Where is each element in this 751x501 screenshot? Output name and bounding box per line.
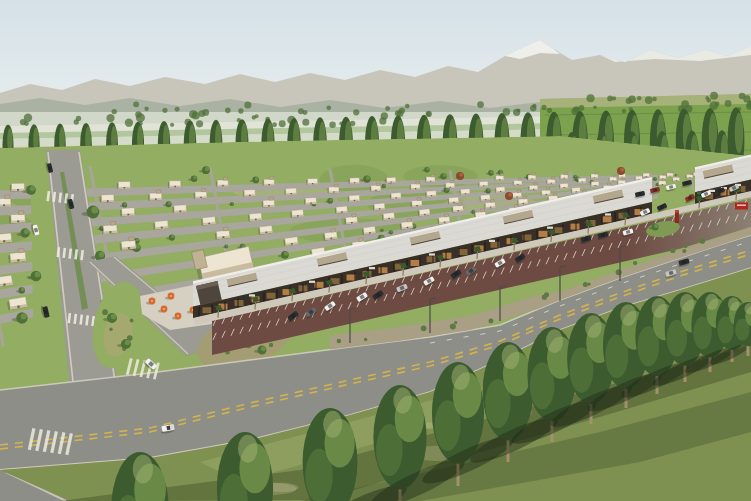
- house-accent-volume: [352, 214, 357, 217]
- distant-tree: [710, 92, 718, 100]
- house-accent-volume: [451, 180, 454, 182]
- house-accent-volume: [334, 184, 338, 187]
- distant-tree: [24, 114, 32, 122]
- distant-tree: [706, 98, 711, 103]
- house-accent-volume: [18, 211, 24, 215]
- house-accent-volume: [376, 183, 380, 186]
- umbrella-top: [151, 300, 153, 302]
- median-shrub: [700, 238, 706, 244]
- distant-tree: [112, 109, 117, 114]
- storefront-window: [555, 227, 564, 233]
- house-door: [297, 215, 299, 217]
- house: [385, 177, 395, 183]
- palm-crown: [253, 297, 258, 302]
- distant-tree: [715, 101, 720, 106]
- house-accent-volume: [500, 174, 503, 176]
- median-shrub: [337, 339, 341, 343]
- house-accent-volume: [663, 174, 666, 176]
- house-door: [670, 176, 671, 177]
- house-accent-volume: [269, 197, 273, 200]
- distant-tree: [513, 109, 520, 116]
- monument-top: [675, 210, 679, 213]
- house-accent-volume: [490, 200, 494, 203]
- tree-highlight: [171, 235, 174, 238]
- house-door: [576, 191, 577, 192]
- canopy-sunlit-top: [652, 298, 667, 318]
- red-tree-highlight: [459, 173, 463, 177]
- median-shrub: [583, 282, 588, 287]
- house-door: [109, 231, 111, 233]
- palm-crown: [364, 272, 369, 277]
- canopy-sunlit-top: [705, 294, 718, 310]
- tree-highlight: [99, 252, 105, 258]
- tree-highlight: [443, 174, 447, 178]
- distant-tree: [541, 105, 546, 110]
- distant-tree: [135, 111, 142, 118]
- tree-highlight: [654, 224, 658, 228]
- house-accent-volume: [416, 182, 420, 185]
- house-door: [444, 222, 446, 224]
- house-door: [516, 196, 517, 197]
- house-door: [128, 247, 130, 249]
- house-door: [391, 181, 392, 182]
- distant-tree: [133, 101, 139, 107]
- house: [495, 187, 505, 193]
- tree-highlight: [242, 244, 245, 247]
- tree-highlight: [500, 170, 503, 173]
- house-door: [17, 259, 19, 261]
- distant-tree: [628, 95, 636, 103]
- house: [571, 187, 581, 193]
- house-door: [107, 200, 109, 202]
- canopy-sunlit-top: [502, 344, 520, 369]
- house: [0, 233, 12, 244]
- tree-highlight: [473, 210, 475, 212]
- house-door: [424, 214, 426, 215]
- house-door: [388, 218, 390, 220]
- tree-highlight: [255, 177, 259, 181]
- tree-highlight: [261, 346, 266, 351]
- storefront-window: [427, 256, 436, 262]
- house-door: [551, 183, 552, 184]
- distant-tree: [547, 108, 552, 113]
- canopy-sunlit-top: [238, 435, 258, 463]
- house-accent-volume: [431, 175, 434, 177]
- house-accent-volume: [676, 175, 679, 177]
- house-accent-volume: [670, 171, 672, 173]
- median-shrub: [684, 245, 688, 249]
- distant-tree: [530, 105, 536, 111]
- house-accent-volume: [480, 209, 484, 212]
- house: [418, 209, 431, 217]
- tree-highlight: [35, 272, 41, 278]
- tree-highlight: [91, 207, 98, 214]
- tree-highlight: [21, 313, 27, 319]
- palm-crown: [216, 305, 221, 310]
- distant-tree: [645, 96, 653, 104]
- palm-crown: [290, 288, 295, 293]
- house: [100, 194, 114, 202]
- distant-tree: [76, 116, 81, 121]
- store-sign: [489, 240, 495, 242]
- house-door: [431, 195, 432, 196]
- tree-highlight: [124, 203, 127, 206]
- house-accent-volume: [156, 190, 161, 193]
- tree-highlight: [231, 202, 233, 204]
- distant-tree: [385, 106, 390, 111]
- canopy-sunlit-top: [323, 411, 342, 438]
- canopy-sunlit-top: [133, 455, 153, 484]
- palm-crown: [327, 280, 332, 285]
- house-door: [689, 177, 690, 178]
- palm-crown: [549, 229, 554, 234]
- store-sign: [547, 227, 553, 229]
- house-door: [564, 178, 565, 179]
- median-shrub: [450, 323, 456, 329]
- median-shrub: [488, 318, 493, 323]
- canopy-sunlit-top: [546, 329, 563, 353]
- storefront-window: [539, 231, 548, 237]
- house-door: [379, 208, 381, 209]
- house: [243, 190, 256, 197]
- distant-tree: [225, 107, 231, 113]
- storefront-window: [235, 300, 244, 306]
- house-door: [662, 178, 663, 179]
- house-accent-volume: [607, 183, 610, 185]
- distant-tree: [202, 109, 209, 116]
- tree-highlight: [193, 176, 197, 180]
- house-door: [369, 232, 371, 234]
- house: [120, 208, 135, 217]
- distant-tree: [593, 105, 597, 109]
- house-door: [622, 177, 623, 178]
- house-door: [490, 207, 491, 208]
- store-sign: [309, 281, 315, 283]
- tree-highlight: [125, 340, 131, 346]
- house-accent-volume: [331, 229, 336, 233]
- poplar-highlight: [735, 113, 743, 153]
- store-sign: [369, 267, 375, 269]
- house-door: [3, 204, 5, 206]
- house-accent-volume: [129, 237, 135, 241]
- median-shrub: [364, 338, 367, 341]
- palm-crown: [438, 255, 443, 260]
- house-door: [533, 189, 534, 190]
- house-door: [453, 202, 454, 203]
- storefront-window: [411, 260, 420, 266]
- distant-tree: [162, 108, 167, 113]
- house-accent-volume: [622, 178, 625, 180]
- umbrella-top: [177, 315, 179, 317]
- house-door: [179, 211, 181, 213]
- house-door: [265, 232, 267, 234]
- house-door: [613, 180, 614, 181]
- house-door: [333, 191, 334, 192]
- house: [382, 212, 395, 220]
- distant-tree: [272, 122, 277, 127]
- house: [168, 181, 181, 188]
- house-accent-volume: [417, 198, 421, 201]
- house-door: [268, 205, 270, 206]
- tree-highlight: [205, 167, 209, 171]
- house-accent-volume: [552, 177, 555, 179]
- house: [642, 173, 650, 177]
- distant-tree: [238, 108, 243, 113]
- house-door: [676, 180, 677, 181]
- desert-shrub: [269, 343, 273, 347]
- house-door: [595, 185, 596, 186]
- house-door: [395, 197, 396, 198]
- house-door: [3, 283, 6, 285]
- house-door: [17, 305, 20, 307]
- house-accent-volume: [613, 175, 616, 177]
- house-accent-volume: [514, 204, 518, 207]
- distant-tree: [189, 110, 197, 118]
- house-door: [546, 194, 547, 195]
- distant-tree: [244, 101, 251, 108]
- distant-tree: [302, 119, 309, 126]
- palm-crown: [475, 246, 480, 251]
- distant-tree: [170, 123, 174, 127]
- house-door: [222, 236, 224, 238]
- distant-tree: [739, 93, 746, 100]
- distant-tree: [622, 109, 626, 113]
- distant-tree: [586, 94, 594, 102]
- store-sign: [605, 213, 611, 215]
- distant-tree: [298, 108, 304, 114]
- canopy-sunlit-top: [585, 315, 602, 338]
- house: [390, 193, 402, 200]
- tree-highlight: [490, 171, 493, 174]
- distant-tree: [175, 107, 180, 112]
- red-tree-highlight: [620, 168, 624, 172]
- house-door: [312, 183, 313, 184]
- tree-highlight: [24, 229, 29, 234]
- tree-highlight: [136, 238, 139, 241]
- storefront-window: [459, 249, 468, 255]
- storefront-window: [347, 275, 356, 281]
- palm-crown: [586, 221, 591, 226]
- house-door: [499, 179, 500, 180]
- distant-tree: [144, 106, 148, 110]
- house-accent-volume: [546, 188, 549, 191]
- house-door: [430, 181, 431, 182]
- house: [335, 206, 348, 214]
- house: [117, 182, 131, 190]
- red-tree-highlight: [508, 193, 512, 197]
- render-canvas: [0, 0, 751, 501]
- tree-highlight: [383, 184, 385, 186]
- median-shrub: [542, 295, 547, 300]
- house: [306, 178, 317, 184]
- house-door: [407, 227, 409, 229]
- canopy-sunlit-top: [728, 297, 739, 311]
- house-door: [155, 198, 157, 200]
- canopy-sunlit-top: [680, 294, 694, 312]
- storefront-window: [571, 224, 580, 230]
- median-shrub: [682, 249, 686, 253]
- tree-highlight: [366, 176, 370, 180]
- tree-highlight: [413, 224, 416, 227]
- house-door: [375, 190, 376, 191]
- house-door: [457, 210, 459, 211]
- house: [349, 178, 360, 184]
- distant-tree: [405, 104, 410, 109]
- aerial-community-render: [0, 0, 751, 501]
- distant-tree: [326, 106, 331, 111]
- house-door: [582, 181, 583, 182]
- tree-highlight: [21, 288, 25, 292]
- distant-tree: [652, 97, 657, 102]
- house-door: [123, 187, 125, 188]
- house-door: [161, 227, 163, 229]
- tree-highlight: [111, 314, 117, 320]
- house-door: [354, 200, 356, 201]
- distant-tree: [106, 114, 114, 122]
- storefront-window: [379, 267, 388, 273]
- house-accent-volume: [518, 178, 521, 180]
- house: [559, 183, 568, 189]
- distant-tree: [579, 105, 585, 111]
- house-door: [415, 188, 416, 189]
- distant-tree: [612, 96, 616, 100]
- median-shrub: [454, 321, 457, 324]
- house-accent-volume: [18, 248, 24, 253]
- house-door: [208, 223, 210, 225]
- house: [425, 191, 436, 198]
- house: [284, 188, 296, 195]
- house-door: [330, 237, 332, 239]
- house-door: [17, 189, 19, 191]
- entry-monument-sign: [735, 203, 748, 210]
- house-accent-volume: [458, 203, 462, 206]
- store-sign: [429, 253, 435, 255]
- distant-tree: [637, 96, 641, 100]
- house-door: [3, 240, 5, 242]
- palm-crown: [512, 238, 517, 243]
- house-door: [255, 219, 257, 221]
- palm-crown: [623, 213, 628, 218]
- sign-text-band: [737, 205, 746, 206]
- house-accent-volume: [5, 195, 10, 199]
- house-door: [200, 197, 202, 198]
- house-accent-volume: [565, 173, 568, 175]
- house-accent-volume: [532, 173, 535, 175]
- palm-crown: [401, 263, 406, 268]
- house-accent-volume: [595, 172, 598, 174]
- house-door: [341, 211, 343, 212]
- house-door: [485, 199, 486, 200]
- distant-tree: [196, 120, 203, 127]
- distant-tree: [254, 114, 258, 118]
- median-shrub: [587, 283, 590, 286]
- house: [373, 203, 385, 210]
- house-door: [17, 220, 19, 222]
- distant-tree: [381, 112, 388, 119]
- house-door: [310, 203, 312, 204]
- house-door: [222, 185, 224, 186]
- house-accent-volume: [553, 193, 557, 196]
- house: [258, 225, 273, 234]
- house-door: [564, 187, 565, 188]
- distant-tree: [353, 109, 359, 115]
- house: [153, 220, 168, 229]
- tree-highlight: [426, 167, 429, 170]
- house-door: [290, 193, 292, 194]
- green-sign: [697, 192, 701, 195]
- storefront-window: [267, 293, 276, 299]
- tree-highlight: [136, 244, 141, 249]
- house-door: [268, 184, 269, 185]
- house-door: [291, 243, 293, 245]
- house: [201, 217, 216, 226]
- house-door: [662, 184, 663, 185]
- house-accent-volume: [523, 196, 527, 199]
- house-door: [483, 185, 484, 186]
- tree-highlight: [654, 177, 656, 179]
- island-shrub: [102, 309, 108, 315]
- house-door: [517, 184, 518, 185]
- island-shrub: [130, 319, 134, 323]
- house-accent-volume: [407, 219, 412, 222]
- house: [348, 195, 360, 202]
- house: [304, 197, 317, 204]
- house-door: [174, 186, 176, 187]
- house-accent-volume: [270, 177, 274, 180]
- house: [172, 205, 186, 213]
- house: [10, 183, 25, 191]
- store-sign: [249, 294, 255, 296]
- tree-highlight: [284, 252, 288, 256]
- house-accent-volume: [517, 190, 521, 193]
- house-accent-volume: [223, 227, 228, 231]
- island-shrub: [109, 327, 113, 331]
- umbrella-top: [163, 308, 165, 310]
- distant-tree: [279, 120, 286, 127]
- distant-tree: [426, 112, 431, 117]
- storefront-window: [603, 216, 612, 222]
- house-door: [450, 187, 451, 188]
- house-door: [354, 182, 355, 183]
- median-shrub: [616, 269, 622, 275]
- distant-tree: [329, 122, 336, 129]
- house: [459, 189, 470, 195]
- house-door: [249, 195, 251, 196]
- house-door: [127, 214, 129, 216]
- distant-tree: [725, 100, 732, 107]
- median-shrub: [633, 261, 637, 265]
- tree-highlight: [226, 245, 228, 247]
- umbrella-top: [170, 295, 172, 297]
- canopy-sunlit-top: [393, 388, 412, 414]
- house-door: [523, 203, 524, 204]
- median-shrub: [670, 248, 675, 253]
- distant-tree: [399, 107, 405, 113]
- canopy-sunlit-top: [451, 365, 469, 390]
- tree-highlight: [382, 229, 384, 231]
- house: [447, 197, 458, 204]
- tree-highlight: [575, 175, 577, 177]
- house-accent-volume: [223, 177, 227, 180]
- tree-highlight: [168, 202, 171, 205]
- house: [479, 195, 490, 202]
- house-door: [351, 222, 353, 224]
- house-accent-volume: [110, 221, 115, 225]
- distant-tree: [125, 119, 133, 127]
- house-door: [646, 176, 647, 177]
- canopy-sunlit-top: [620, 304, 636, 326]
- house-accent-volume: [690, 173, 693, 175]
